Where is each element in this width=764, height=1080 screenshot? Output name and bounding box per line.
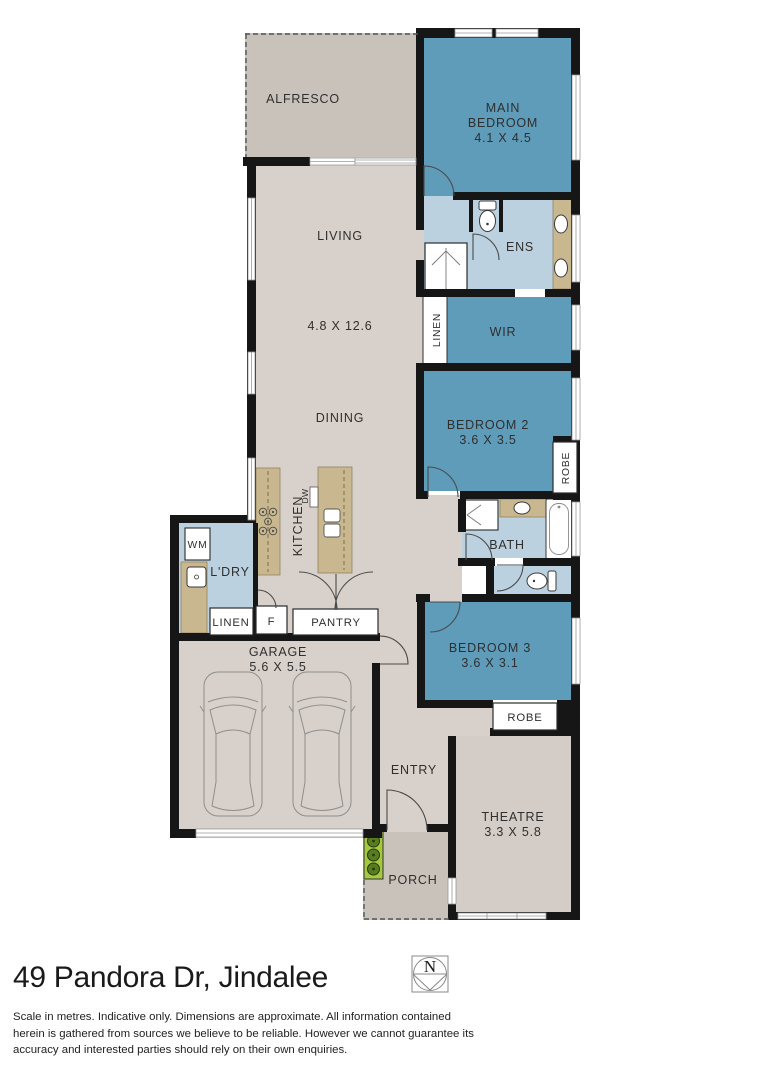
linen-hall-label: LINEN	[432, 313, 443, 347]
laundry-label: L'DRY	[210, 565, 250, 579]
robe-bedroom2-label: ROBE	[561, 452, 572, 484]
robe-bedroom3-label: ROBE	[507, 712, 542, 724]
bedroom3-dims: 3.6 X 3.1	[461, 656, 518, 670]
theatre-floor	[456, 736, 571, 912]
living-label: LIVING	[317, 229, 363, 243]
entry-label: ENTRY	[391, 763, 437, 777]
living-dining-dims: 4.8 X 12.6	[308, 319, 373, 333]
disclaimer-line: herein is gathered from sources we belie…	[13, 1026, 474, 1043]
theatre-dims: 3.3 X 5.8	[484, 825, 541, 839]
bath-hall-floor	[424, 495, 462, 602]
main-bedroom-label2: BEDROOM	[468, 116, 538, 130]
page-title: 49 Pandora Dr, Jindalee	[13, 961, 328, 995]
toilet-icon	[479, 201, 496, 232]
wir-label: WIR	[490, 325, 517, 339]
garage-dims: 5.6 X 5.5	[249, 660, 306, 674]
garage-label: GARAGE	[249, 645, 307, 659]
compass-north-letter: N	[424, 957, 436, 976]
washing-machine-label: WM	[188, 540, 208, 551]
disclaimer-text: Scale in metres. Indicative only. Dimens…	[13, 1009, 474, 1059]
pantry-label: PANTRY	[311, 617, 361, 629]
alfresco-label: ALFRESCO	[266, 92, 340, 106]
laundry-tub-icon	[187, 567, 206, 587]
cupboard-icon	[425, 243, 467, 292]
bedroom2-label: BEDROOM 2	[447, 418, 529, 432]
linen-laundry-label: LINEN	[212, 617, 249, 629]
toilet-icon	[527, 571, 556, 591]
planter-icon	[364, 831, 383, 879]
ensuite-label: ENS	[506, 240, 534, 254]
bedroom2-dims: 3.6 X 3.5	[459, 433, 516, 447]
bathtub-icon	[546, 499, 572, 559]
fridge-label: F	[268, 616, 276, 628]
main-bedroom-dims: 4.1 X 4.5	[474, 131, 531, 145]
north-compass-icon: N	[412, 956, 448, 992]
theatre-label: THEATRE	[481, 810, 544, 824]
floor-areas	[170, 33, 571, 920]
shower-icon	[463, 500, 498, 530]
disclaimer-line: Scale in metres. Indicative only. Dimens…	[13, 1009, 474, 1026]
dishwasher	[310, 487, 318, 507]
dining-label: DINING	[316, 411, 365, 425]
bedroom3-label: BEDROOM 3	[449, 641, 531, 655]
kitchen-label: KITCHEN	[291, 496, 305, 556]
floorplan-page: ALFRESCO MAIN BEDROOM 4.1 X 4.5 LIVING 4…	[0, 0, 764, 1080]
basin-icon	[514, 502, 530, 514]
floorplan-drawing: ALFRESCO MAIN BEDROOM 4.1 X 4.5 LIVING 4…	[0, 0, 764, 1080]
disclaimer-line: accuracy and interested parties should r…	[13, 1042, 474, 1059]
porch-label: PORCH	[388, 873, 437, 887]
dishwasher-label: DW	[300, 489, 310, 504]
main-bedroom-label: MAIN	[486, 101, 520, 115]
bath-label: BATH	[489, 538, 525, 552]
